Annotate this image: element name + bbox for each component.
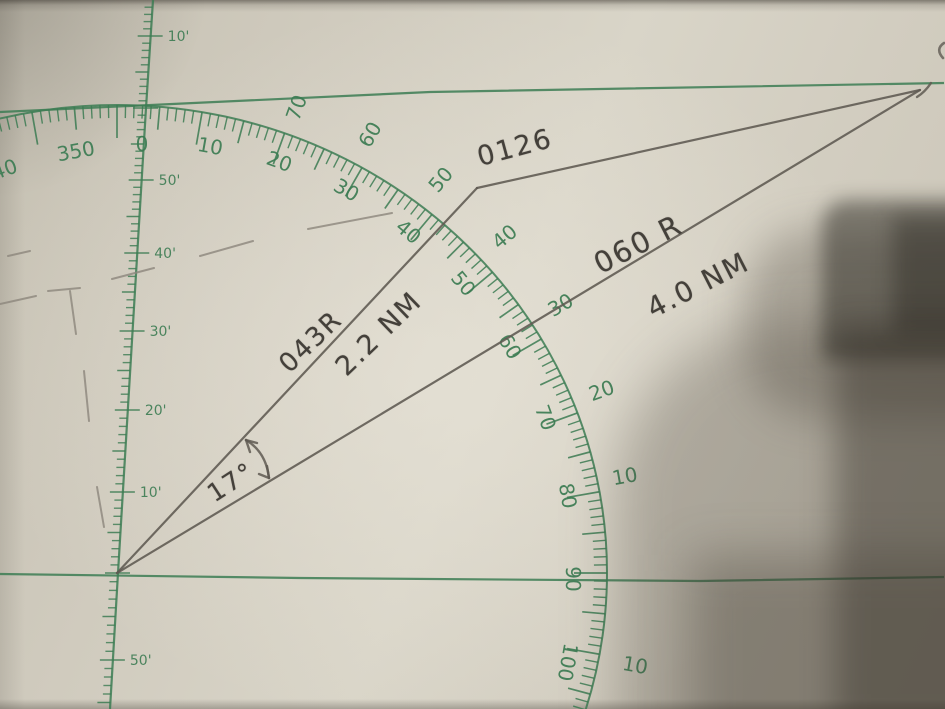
rose-tick (460, 248, 469, 257)
rose-tick (377, 181, 384, 192)
rose-tick (348, 164, 354, 175)
rose-tick (568, 421, 580, 425)
rose-outer-label: 60 (353, 117, 387, 151)
rose-tick (24, 114, 26, 127)
pencil-dash (8, 251, 30, 256)
rose-tick (167, 108, 168, 121)
meridian-label: 10' (168, 29, 190, 45)
rose-tick (593, 597, 606, 598)
parallel-mid (0, 574, 944, 581)
rose-tick (91, 106, 92, 119)
rose-tick (0, 119, 2, 132)
rose-outer-label: 30 (543, 288, 577, 322)
meridian-label: 20' (145, 403, 167, 419)
rose-inner-label: 80 (554, 481, 582, 510)
rose-outer-label: 10 (621, 651, 650, 679)
rose-tick (588, 500, 601, 502)
rose-tick (57, 108, 59, 121)
rose-tick (591, 524, 604, 525)
rose-tick (573, 436, 585, 440)
rose-tick (150, 106, 151, 119)
rose-tick (74, 107, 76, 130)
pencil-dash (70, 291, 76, 334)
rose-tick (334, 156, 340, 168)
rose-tick (7, 117, 10, 130)
rose-tick (571, 428, 583, 432)
rose-tick (585, 660, 598, 662)
pencil-dash (48, 288, 80, 291)
rose-tick (553, 383, 565, 388)
rose-tick (512, 311, 523, 318)
rose-tick (593, 605, 606, 606)
rose-tick (385, 190, 398, 209)
rose-tick (471, 260, 481, 269)
rose-tick (466, 254, 476, 263)
meridian-label: 50' (159, 173, 181, 189)
rose-tick (40, 111, 42, 124)
rose-inner-label: 90 (561, 566, 585, 591)
rose-tick (589, 636, 602, 638)
rose-tick (175, 108, 177, 121)
rose-inner-label: 340 (0, 154, 21, 190)
pencil-dash (200, 241, 253, 256)
rose-tick (540, 375, 561, 385)
rose-tick (384, 185, 391, 196)
rose-tick (417, 209, 425, 219)
rose-tick (584, 668, 597, 671)
rose-tick (582, 532, 605, 534)
rose-tick (559, 398, 571, 403)
plotting-sheet: 10'50'40'30'20'10'50'3403500102030405060… (0, 0, 945, 709)
rose-tick (576, 698, 588, 702)
rose-tick (576, 444, 588, 448)
rose-inner-label: 0 (136, 132, 149, 156)
meridian-label: 50' (130, 653, 152, 669)
rose-tick (582, 468, 595, 471)
rose-tick (562, 405, 574, 410)
rose-tick (589, 508, 602, 510)
rose-tick (477, 266, 487, 275)
rose-tick (493, 285, 503, 293)
rose-tick (488, 278, 498, 286)
meridian-label: 10' (140, 485, 162, 501)
rose-tick (216, 115, 219, 128)
rose-inner-label: 100 (553, 641, 583, 683)
rose-tick (326, 152, 332, 164)
rose-inner-label: 20 (263, 146, 295, 177)
rose-tick (224, 117, 227, 130)
rose-tick (584, 476, 597, 479)
rose-inner-label: 70 (530, 402, 561, 434)
rose-tick (363, 172, 370, 183)
rose-tick (397, 194, 405, 205)
rose-outer-label: 50 (423, 162, 458, 197)
rose-tick (588, 644, 601, 646)
rose-tick (208, 114, 210, 127)
meridian-label: 40' (154, 246, 176, 262)
rose-tick (248, 123, 252, 135)
rose-tick (593, 549, 606, 550)
rose-tick (238, 121, 244, 143)
rose-inner-label: 50 (446, 266, 481, 301)
rose-tick (430, 220, 439, 230)
pencil-dash (112, 268, 154, 279)
rose-tick (272, 130, 276, 142)
rose-tick (580, 460, 593, 463)
chart-photo: 10'50'40'30'20'10'50'3403500102030405060… (0, 0, 945, 709)
rose-tick (192, 111, 194, 124)
rose-tick (311, 145, 316, 157)
rose-tick (593, 540, 606, 541)
rose-tick (32, 112, 38, 144)
rose-tick (448, 236, 457, 245)
rose-tick (590, 628, 603, 630)
rose-tick (546, 368, 558, 374)
rose-tick (568, 688, 590, 694)
rose-tick (585, 484, 598, 486)
rose-tick (142, 106, 143, 119)
rose-tick (538, 353, 549, 359)
rose-tick (15, 115, 18, 128)
rose-tick (264, 128, 268, 140)
rose-tick (183, 110, 185, 123)
rose-inner-label: 60 (493, 329, 527, 363)
rose-tick (49, 110, 51, 123)
rose-tick (542, 361, 554, 367)
rose-inner-label: 350 (55, 136, 97, 166)
rose-tick (556, 390, 568, 395)
rose-tick (503, 298, 514, 306)
rose-tick (256, 125, 260, 137)
rose-tick (83, 106, 84, 119)
rose-outer-label: 10 (610, 462, 639, 490)
rose-tick (288, 136, 293, 148)
rose-outer-label: 40 (487, 219, 522, 254)
rose-tick (158, 107, 160, 130)
rose-tick (582, 612, 605, 614)
edge-pencil-mark (939, 43, 944, 58)
rose-tick (341, 160, 347, 171)
rose-tick (568, 452, 590, 458)
rose-tick (590, 516, 603, 518)
rose-tick (232, 119, 235, 132)
rose-tick (314, 149, 324, 170)
rose-inner-label: 10 (196, 132, 225, 160)
rose-tick (303, 142, 308, 154)
rose-outer-label: 70 (281, 92, 312, 124)
rose-tick (534, 346, 545, 352)
rose-tick (442, 231, 451, 241)
rose-tick (517, 318, 528, 325)
rose-tick (498, 291, 508, 299)
pencil-dash (84, 371, 89, 421)
rose-tick (582, 675, 595, 678)
rose-inner-label: 40 (391, 214, 426, 249)
compass-arc (0, 105, 607, 709)
rose-tick (296, 139, 301, 151)
rose-inner-label: 30 (329, 173, 363, 207)
pencil-dash (0, 296, 36, 304)
rose-tick (591, 621, 604, 622)
rose-tick (580, 683, 593, 686)
pencil-dash (97, 487, 104, 527)
meridian-label: 30' (150, 324, 172, 340)
rose-tick (526, 332, 537, 339)
rose-outer-label: 20 (586, 375, 618, 406)
pencil-dash (308, 213, 392, 229)
rose-tick (404, 199, 412, 209)
rose-tick (411, 204, 419, 214)
rose-tick (370, 176, 377, 187)
